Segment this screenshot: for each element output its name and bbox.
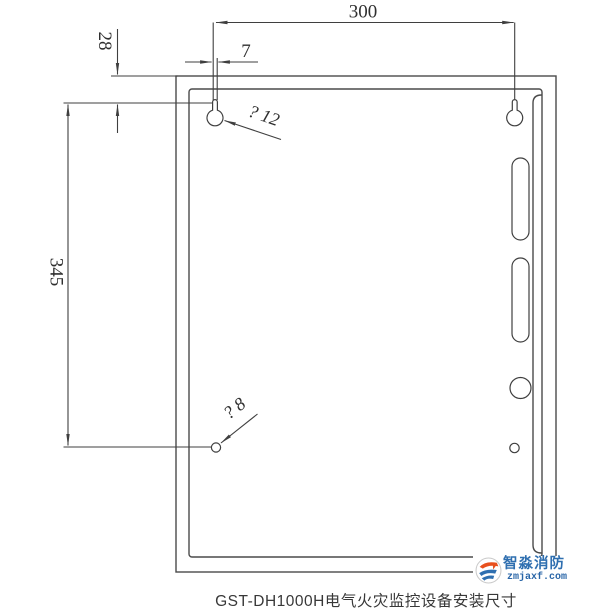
cabinet-outline bbox=[176, 76, 556, 572]
dim-label-300: 300 bbox=[349, 2, 378, 23]
watermark: 智淼消防 zmjaxf.com bbox=[473, 556, 569, 585]
watermark-brand: 智淼消防 bbox=[503, 557, 567, 573]
side-slot-upper bbox=[512, 158, 529, 240]
dim-label-345: 345 bbox=[46, 258, 67, 287]
drawing-svg: 300 7 28 345 ? 12 ? 8 bbox=[0, 0, 608, 616]
lock-hole bbox=[510, 378, 531, 399]
watermark-texts: 智淼消防 zmjaxf.com bbox=[503, 557, 567, 583]
small-right-hole bbox=[510, 443, 519, 452]
installation-dimension-diagram: 300 7 28 345 ? 12 ? 8 智淼消防 zmjaxf.com GS… bbox=[0, 0, 608, 616]
dim-label-7: 7 bbox=[241, 41, 251, 62]
bottom-mounting-hole bbox=[211, 443, 220, 452]
cabinet-inner-box bbox=[189, 89, 542, 557]
side-slot-lower bbox=[512, 258, 529, 342]
watermark-site: zmjaxf.com bbox=[507, 573, 567, 584]
diagram-caption: GST-DH1000H电气火灾监控设备安装尺寸 bbox=[176, 589, 556, 611]
zhimiao-swoosh-logo-icon bbox=[475, 557, 502, 584]
dim-label-28: 28 bbox=[94, 32, 115, 51]
